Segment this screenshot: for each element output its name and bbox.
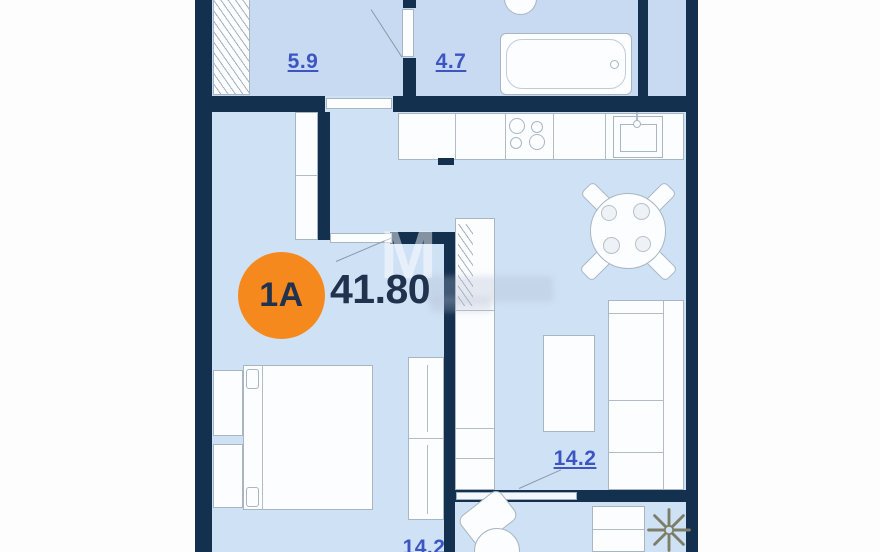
wardrobe-divider [409,438,443,439]
counter-divider [455,114,456,159]
nightstand [213,370,243,436]
floor-plan: М 5.9 4.7 14.2 14.2 1A 41.80 [0,0,880,552]
bathtub-inner [506,39,626,89]
room-label-living: 14.2 [546,447,604,471]
coffee-table [543,335,595,432]
room-label-hallway: 5.9 [278,50,328,74]
plate [633,203,650,220]
sofa-backrest-line [663,301,664,489]
stove-burner [510,137,522,149]
kitchen-sink-basin [620,124,657,152]
nightstand [213,444,243,508]
stove-burner [531,121,543,133]
dining-table [590,193,666,269]
watermark-streak [430,298,492,312]
hall-door-leaf [326,98,392,109]
bed-fold-line [262,366,263,509]
counter-divider [605,114,606,159]
bath-door-leaf [402,9,414,57]
pillow [246,369,259,389]
stove-burner [529,134,545,150]
sofa-cushion-line [609,400,663,401]
sofa [608,300,684,490]
bedroom-wall-vertical [318,112,330,240]
counter-divider [505,114,506,159]
cabinet-divider [593,529,644,530]
plate [603,237,620,254]
bathtub-faucet [610,60,619,69]
wardrobe-rod [427,365,428,432]
total-area-label: 41.80 [330,266,430,312]
niche-floor [648,0,686,96]
balcony-window [456,492,577,500]
unit-badge: 1A [238,252,325,339]
sofa-armrest-line [609,452,663,453]
plate [601,205,617,221]
sink-faucet [633,120,641,128]
pillow [246,487,259,507]
snowflake-icon [645,506,693,552]
wardrobe-rod [427,445,428,514]
stove-burner [509,118,525,134]
wardrobe [295,112,318,240]
wardrobe-divider [296,175,317,176]
wardrobe-divider [456,428,494,429]
room-label-bathroom: 4.7 [425,50,477,74]
counter-divider [553,114,554,159]
plate [635,236,651,252]
room-label-bedroom: 14.2 [393,536,455,552]
sofa-armrest-line [609,313,663,314]
counter-handle [438,158,454,165]
shaft-hatch [213,0,250,95]
wardrobe-divider [456,458,494,459]
